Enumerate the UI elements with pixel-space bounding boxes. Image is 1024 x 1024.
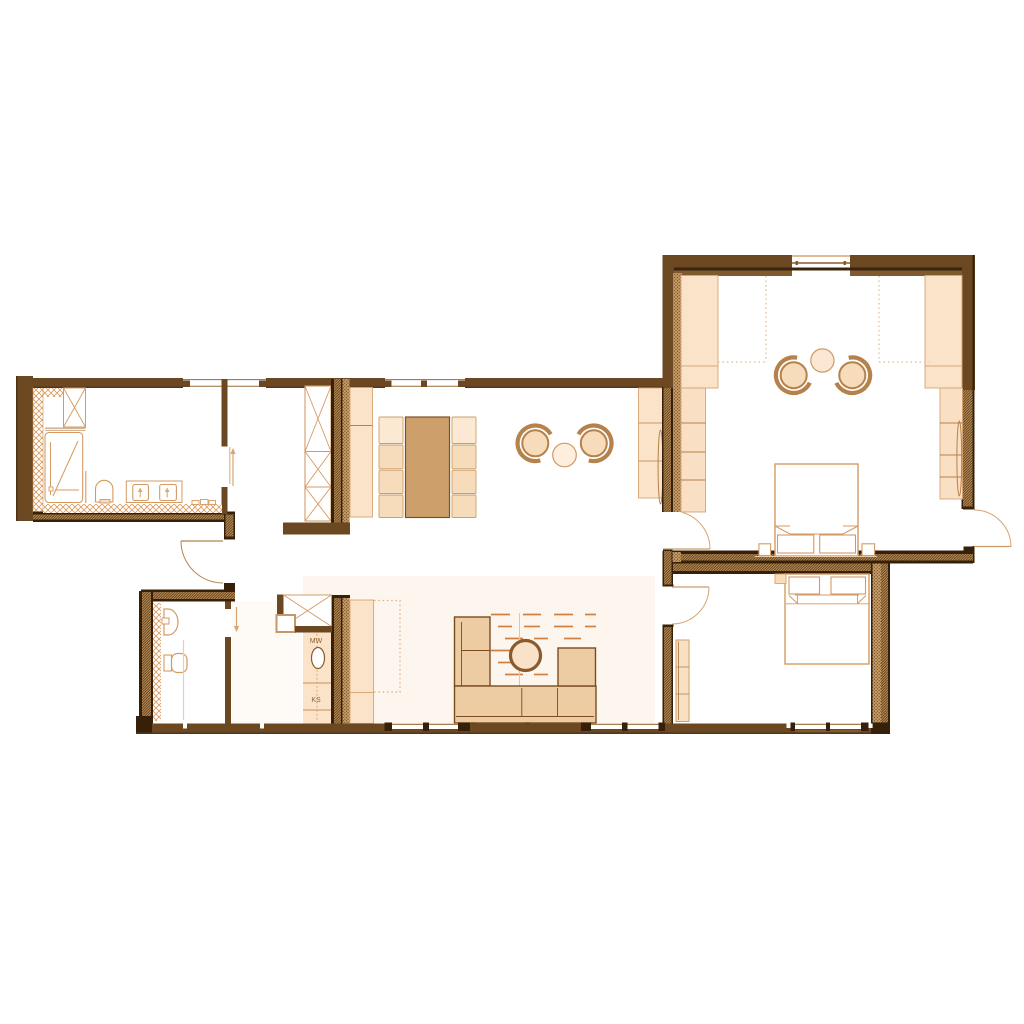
svg-text:MW: MW bbox=[310, 638, 323, 645]
svg-text:KS: KS bbox=[311, 697, 321, 704]
